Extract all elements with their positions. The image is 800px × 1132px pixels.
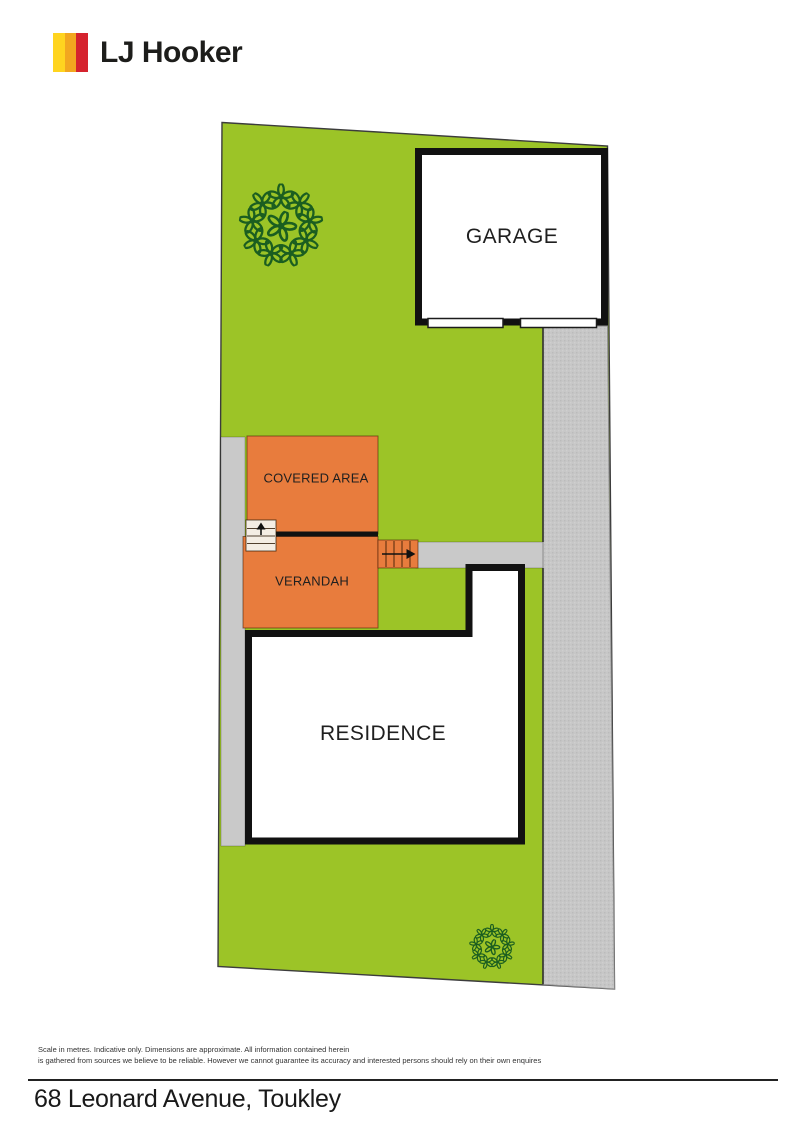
verandah-label: VERANDAH bbox=[275, 574, 349, 589]
property-address: 68 Leonard Avenue, Toukley bbox=[34, 1085, 341, 1114]
site-plan: GARAGE COVERED AREA VERANDAH RESIDENCE bbox=[0, 0, 800, 1132]
right-steps bbox=[378, 540, 418, 568]
garage-label: GARAGE bbox=[466, 225, 558, 249]
garage-door-left bbox=[428, 319, 503, 328]
disclaimer-line-2: is gathered from sources we believe to b… bbox=[38, 1055, 541, 1066]
site-plan-canvas bbox=[0, 0, 800, 1132]
driveway bbox=[543, 326, 615, 989]
residence-label: RESIDENCE bbox=[320, 722, 446, 746]
left-path bbox=[221, 437, 245, 846]
divider-line bbox=[28, 1079, 778, 1081]
site-plan-page: LJ Hooker bbox=[0, 0, 800, 1132]
left-steps bbox=[246, 520, 276, 551]
disclaimer-text: Scale in metres. Indicative only. Dimens… bbox=[38, 1044, 541, 1066]
covered-area-label: COVERED AREA bbox=[264, 471, 369, 486]
disclaimer-line-1: Scale in metres. Indicative only. Dimens… bbox=[38, 1044, 541, 1055]
garage-door-right bbox=[521, 319, 597, 328]
